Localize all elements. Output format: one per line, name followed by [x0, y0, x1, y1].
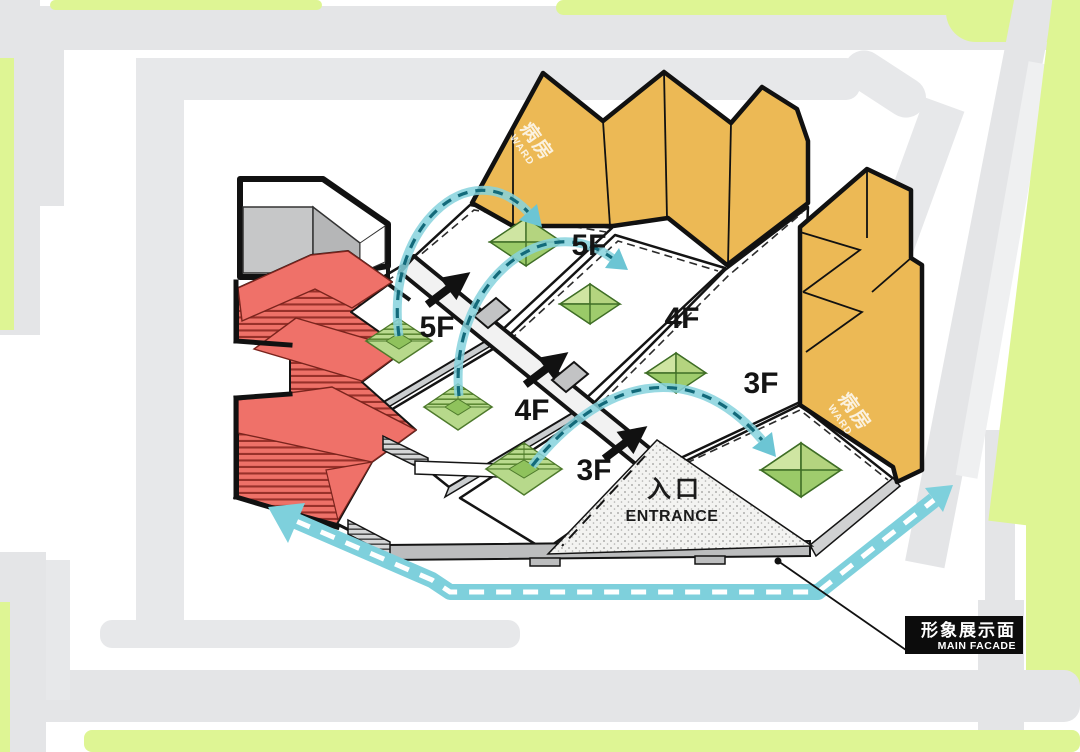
axon-diagram-page: 病房 WARD 病房 WARD [0, 0, 1080, 752]
floor-label-4f-right: 4F [664, 302, 699, 335]
floor-label-3f-right: 3F [743, 367, 778, 400]
floor-label-5f-left: 5F [419, 311, 454, 344]
entrance-label-en: ENTRANCE [626, 508, 719, 525]
floor-label-4f-left: 4F [514, 394, 549, 427]
entrance-label-cn: 入口 [647, 476, 703, 503]
main-facade-label-cn: 形象展示面 [921, 620, 1016, 640]
floor-label-3f-left: 3F [576, 454, 611, 487]
floor-label-5f-right: 5F [571, 229, 606, 262]
axon-diagram: 病房 WARD 病房 WARD [0, 0, 1080, 752]
main-facade-label-en: MAIN FACADE [938, 640, 1016, 652]
main-facade-callout: 形象展示面 MAIN FACADE [775, 558, 1024, 655]
